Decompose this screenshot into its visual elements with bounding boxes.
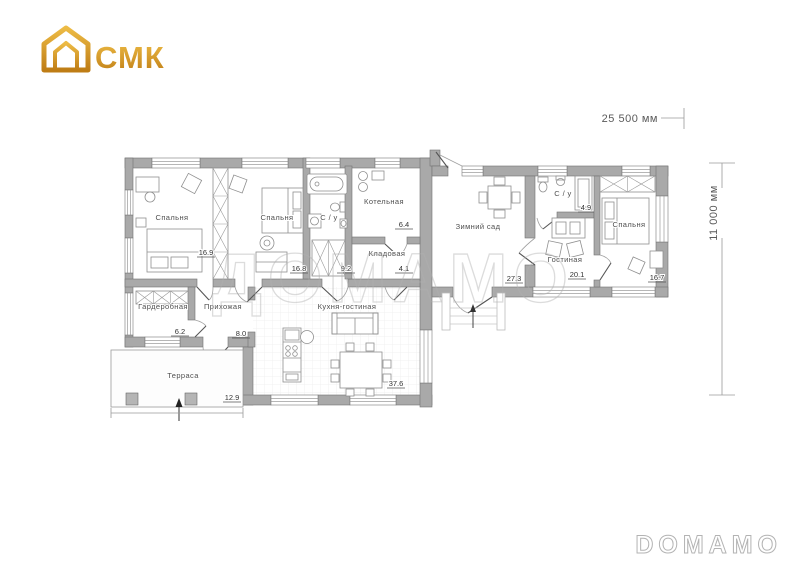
room-area: 4.9 <box>581 203 591 212</box>
room-area: 9.2 <box>341 264 351 273</box>
furniture-bedroom-2 <box>229 175 303 272</box>
room-area: 12.9 <box>225 393 240 402</box>
floor-plan-drawing: Спальня 16.9 Спальня 16.8 С / у 9.2 Коте… <box>0 0 800 566</box>
room-label: Кухня-гостиная <box>318 302 377 311</box>
furniture-living-room <box>546 218 585 257</box>
room-label: Спальня <box>156 213 189 222</box>
room-label: Котельная <box>364 197 404 206</box>
room-label: Гостиная <box>548 255 583 264</box>
watermark-corner: DOMAMO <box>635 531 782 560</box>
room-label: Спальня <box>261 213 294 222</box>
room-label: Кладовая <box>369 249 406 258</box>
room-label: Терраса <box>167 371 199 380</box>
floor-plan-page: СМК <box>0 0 800 566</box>
room-area: 16.8 <box>292 264 307 273</box>
furniture-bedroom-1 <box>136 173 202 272</box>
room-area: 20.1 <box>570 270 585 279</box>
dimension-height: 11 000 мм <box>708 163 735 395</box>
dimension-height-label: 11 000 мм <box>708 185 720 241</box>
dimension-width: 25 500 мм <box>602 108 684 129</box>
terrace-post <box>185 393 197 405</box>
room-area: 37.6 <box>389 379 404 388</box>
room-label: Зимний сад <box>456 222 501 231</box>
room-area: 4.1 <box>399 264 409 273</box>
room-label: С / у <box>320 213 337 222</box>
entrance-steps <box>442 293 505 330</box>
room-area: 8.0 <box>236 329 246 338</box>
room-area: 16.7 <box>650 273 665 282</box>
room-label: Спальня <box>613 220 646 229</box>
room-label: Гардеробная <box>138 302 188 311</box>
room-area: 6.4 <box>399 220 409 229</box>
dimension-terrace <box>111 408 243 418</box>
room-area: 6.2 <box>175 327 185 336</box>
closet-between-bedrooms <box>213 168 228 279</box>
room-label: Прихожая <box>204 302 242 311</box>
terrace-post <box>126 393 138 405</box>
furniture-boiler-room <box>359 171 385 192</box>
furniture-winter-garden <box>479 177 520 218</box>
room-area: 16.9 <box>199 248 214 257</box>
room-area: 27.3 <box>507 274 522 283</box>
dimension-width-label: 25 500 мм <box>602 113 658 125</box>
room-label: С / у <box>554 189 571 198</box>
furniture-bathroom-1 <box>307 174 347 276</box>
